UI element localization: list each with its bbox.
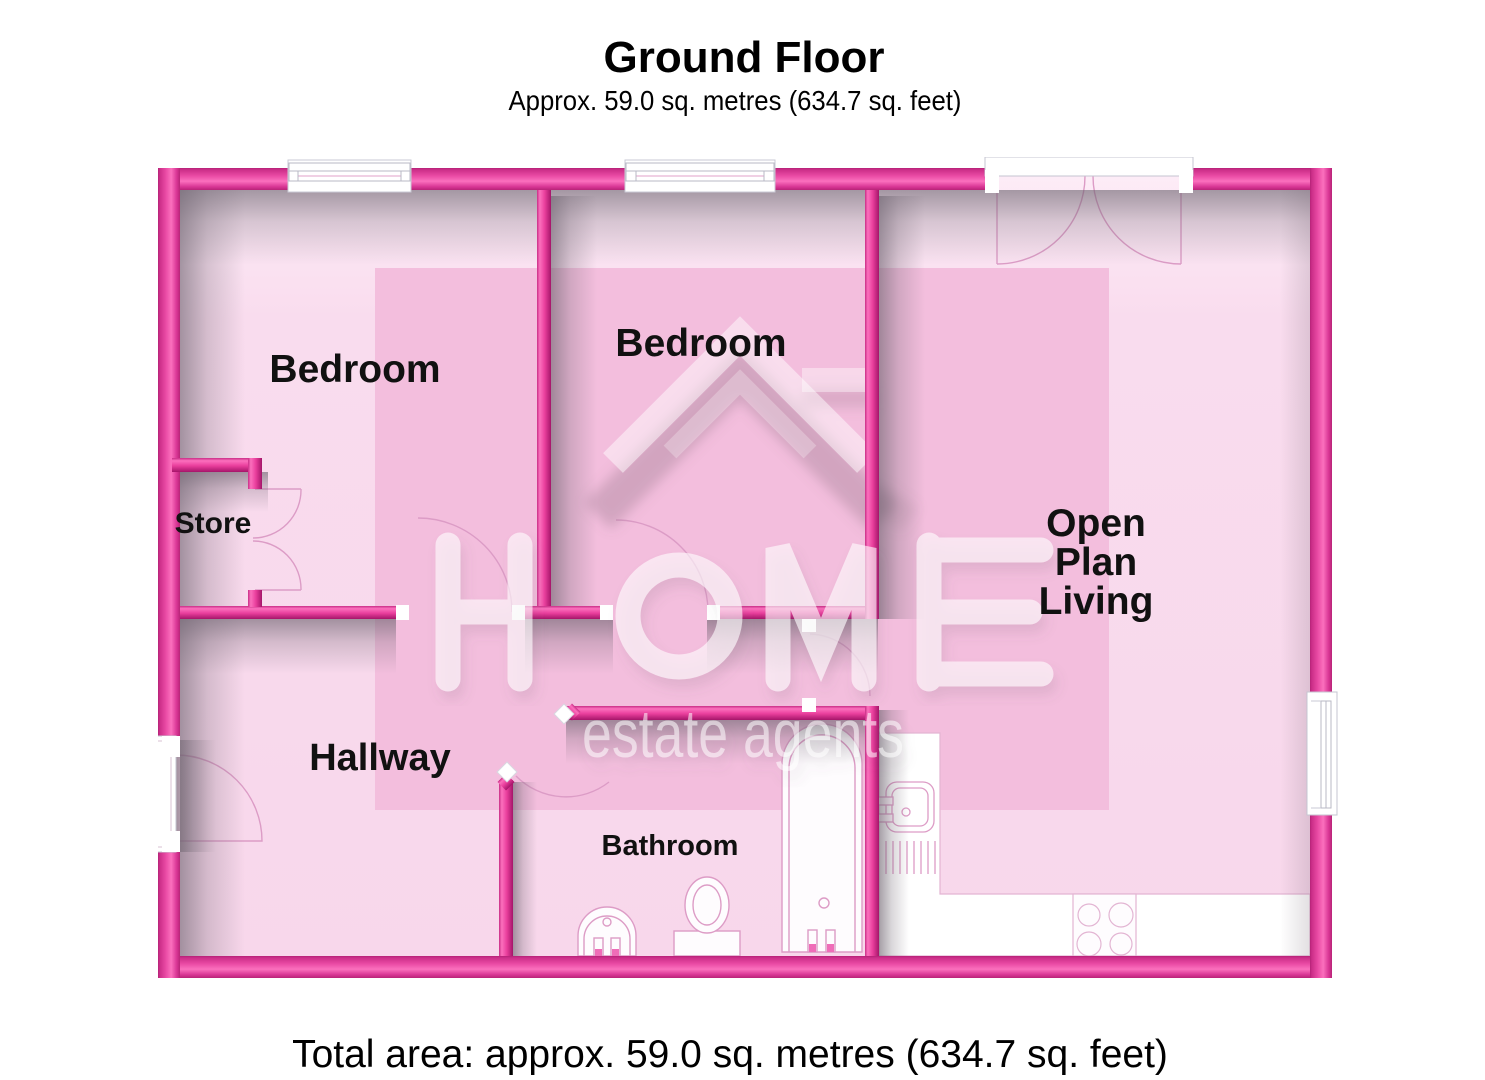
- svg-text:Open: Open: [1046, 502, 1146, 545]
- svg-text:estate agents: estate agents: [582, 696, 904, 772]
- svg-text:Bathroom: Bathroom: [602, 830, 739, 862]
- svg-text:Bedroom: Bedroom: [269, 348, 440, 391]
- svg-text:Living: Living: [1039, 580, 1154, 623]
- svg-text:Approx. 59.0 sq. metres (634.7: Approx. 59.0 sq. metres (634.7 sq. feet): [509, 85, 962, 116]
- svg-text:Bedroom: Bedroom: [615, 322, 786, 365]
- svg-text:Ground Floor: Ground Floor: [603, 33, 884, 82]
- svg-text:Store: Store: [175, 507, 252, 540]
- svg-text:Hallway: Hallway: [309, 737, 451, 779]
- svg-text:Plan: Plan: [1055, 541, 1137, 584]
- svg-text:Total area: approx. 59.0 sq. m: Total area: approx. 59.0 sq. metres (634…: [292, 1033, 1168, 1076]
